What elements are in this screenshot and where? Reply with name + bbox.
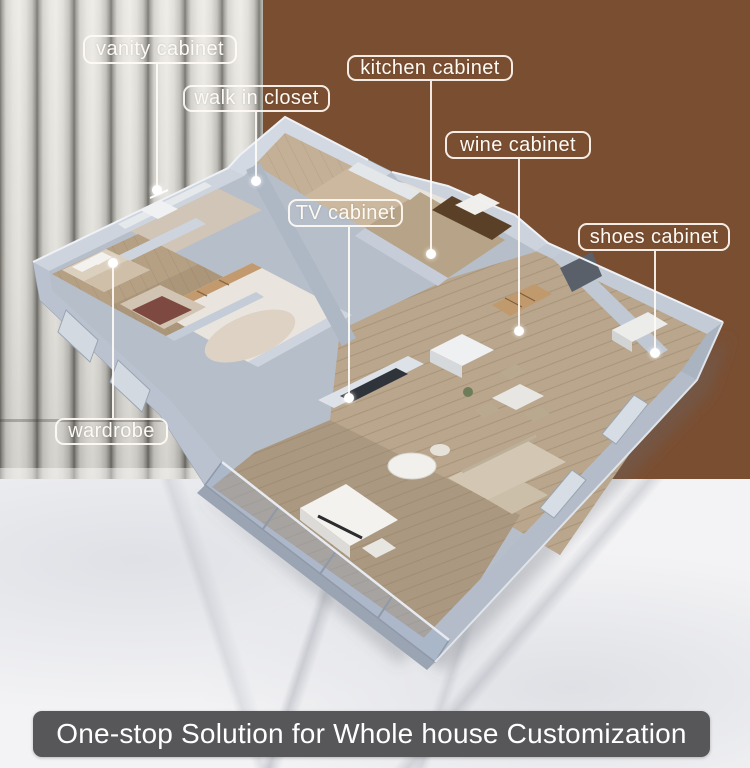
anchor-dot-wardrobe <box>108 258 118 268</box>
anchor-dot-kitchen <box>426 249 436 259</box>
leader-line-kitchen <box>430 81 432 250</box>
banner: One-stop Solution for Whole house Custom… <box>33 711 710 757</box>
leader-line-wardrobe <box>112 265 114 418</box>
side-table <box>430 444 450 456</box>
anchor-dot-closet <box>251 176 261 186</box>
callout-shoes-cabinet: shoes cabinet <box>578 223 730 251</box>
plant <box>463 387 473 397</box>
callout-tv-cabinet: TV cabinet <box>288 199 403 227</box>
callout-walk-in-closet: walk in closet <box>183 85 330 112</box>
anchor-dot-wine <box>514 326 524 336</box>
anchor-dot-shoes <box>650 348 660 358</box>
callout-label: TV cabinet <box>296 202 396 225</box>
callout-vanity-cabinet: vanity cabinet <box>83 35 237 64</box>
callout-label: wine cabinet <box>460 134 576 157</box>
banner-text: One-stop Solution for Whole house Custom… <box>56 718 686 750</box>
callout-label: walk in closet <box>194 87 319 110</box>
callout-label: kitchen cabinet <box>360 57 499 80</box>
anchor-dot-tv <box>344 393 354 403</box>
leader-line-closet <box>255 112 257 177</box>
callout-wardrobe: wardrobe <box>55 418 168 445</box>
leader-line-tv <box>348 227 350 394</box>
callout-label: vanity cabinet <box>96 38 224 61</box>
coffee-table <box>388 453 436 479</box>
callout-label: shoes cabinet <box>590 226 719 249</box>
callout-wine-cabinet: wine cabinet <box>445 131 591 159</box>
leader-line-shoes <box>654 251 656 349</box>
callout-label: wardrobe <box>68 420 155 443</box>
callout-kitchen-cabinet: kitchen cabinet <box>347 55 513 81</box>
leader-line-vanity <box>156 64 158 186</box>
leader-line-wine <box>518 159 520 327</box>
poster: vanity cabinet walk in closet kitchen ca… <box>0 0 750 768</box>
anchor-dot-vanity <box>152 185 162 195</box>
